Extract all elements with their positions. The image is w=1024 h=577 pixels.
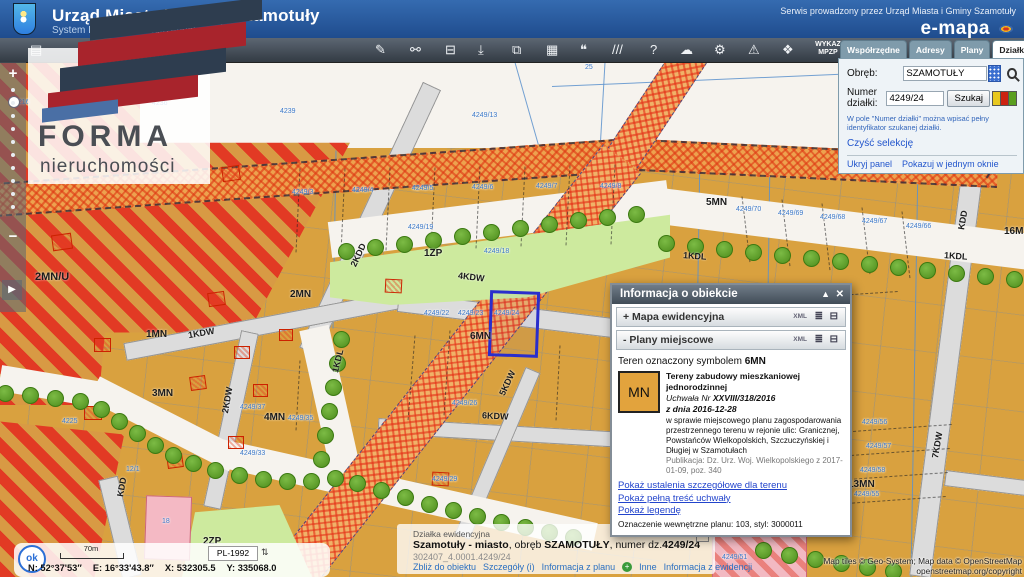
parcel-number-label: 4239 bbox=[280, 108, 296, 115]
zoom-out-button[interactable]: − bbox=[0, 228, 26, 245]
publikacja-line: Publikacja: Dz. Urz. Woj. Wielkopolskieg… bbox=[666, 456, 844, 476]
tree-icon bbox=[397, 489, 414, 506]
map-attribution: Map tiles © Geo-System; Map data © OpenS… bbox=[823, 557, 1022, 576]
scale-label: 70m bbox=[60, 544, 122, 553]
parcel-number-label: 4249/7 bbox=[536, 183, 557, 190]
popup-titlebar[interactable]: Informacja o obiekcie ▲ ✕ bbox=[612, 285, 850, 304]
zoom-tick[interactable] bbox=[11, 114, 15, 118]
popup-link[interactable]: Pokaż pełną treść uchwały bbox=[618, 493, 844, 506]
coordinates-readout: N: 52°37'53″ E: 16°33'43.8″ X: 532305.5 … bbox=[28, 563, 276, 573]
more-options-icon[interactable]: + bbox=[622, 562, 632, 572]
plan-title: Tereny zabudowy mieszkaniowej jednorodzi… bbox=[666, 371, 844, 393]
szukaj-button[interactable]: Szukaj bbox=[947, 90, 990, 107]
tree-icon bbox=[570, 212, 587, 229]
zone-label: 3MN bbox=[152, 388, 173, 399]
print-icon[interactable]: ⊟ bbox=[445, 41, 456, 58]
tab-działki[interactable]: Działki bbox=[992, 40, 1024, 58]
measure-icon[interactable]: /// bbox=[612, 41, 623, 58]
clear-selection-link[interactable]: Czyść selekcję bbox=[847, 138, 1017, 149]
selection-color-flags[interactable] bbox=[993, 91, 1017, 106]
draw-icon[interactable]: ✎ bbox=[375, 41, 386, 58]
search-tabs: WspółrzędneAdresyPlanyDziałkiObiekty✕ bbox=[838, 40, 1024, 58]
coord-e: E: 16°33'43.8″ bbox=[93, 563, 154, 573]
zone-label: 2MN bbox=[290, 289, 311, 300]
building-outline bbox=[221, 165, 241, 182]
tree-icon bbox=[1006, 271, 1023, 288]
grid-icon[interactable]: ▦ bbox=[546, 41, 558, 58]
plan-description: w sprawie miejscowego planu zagospodarow… bbox=[666, 416, 844, 456]
zoom-tick[interactable] bbox=[11, 153, 15, 157]
zoom-tick[interactable] bbox=[11, 192, 15, 196]
building-outline bbox=[279, 329, 293, 341]
tree-icon bbox=[185, 455, 202, 472]
tree-icon bbox=[512, 220, 529, 237]
tree-icon bbox=[658, 235, 675, 252]
tree-icon bbox=[716, 241, 733, 258]
coord-x: X: 532305.5 bbox=[165, 563, 216, 573]
parcel-number-label: 4249/6 bbox=[472, 184, 493, 191]
parcel-number-label: 4249/26 bbox=[452, 400, 477, 407]
numer-input[interactable] bbox=[886, 91, 944, 106]
building-outline bbox=[228, 436, 244, 449]
zone-label: 1KDL bbox=[944, 250, 968, 262]
emapa-logo: e-mapa bbox=[920, 18, 990, 40]
zoom-tick[interactable] bbox=[11, 140, 15, 144]
tree-icon bbox=[628, 206, 645, 223]
parcel-number-label: 4249/4 bbox=[352, 187, 373, 194]
tree-icon bbox=[165, 447, 182, 464]
object-info-popup: Informacja o obiekcie ▲ ✕ + Mapa ewidenc… bbox=[610, 283, 852, 537]
zoom-slider[interactable]: + − bbox=[0, 62, 26, 312]
parcel-number-label: 12/1 bbox=[126, 466, 140, 473]
building-outline bbox=[234, 346, 250, 359]
parcel-number-label: 4249/33 bbox=[240, 450, 265, 457]
oznaczenie-line: Oznaczenie wewnętrzne planu: 103, styl: … bbox=[618, 519, 844, 529]
tree-icon bbox=[599, 209, 616, 226]
tree-icon bbox=[421, 496, 438, 513]
popup-close-icon[interactable]: ✕ bbox=[836, 285, 844, 304]
tree-icon bbox=[396, 236, 413, 253]
tree-icon bbox=[367, 239, 384, 256]
parcel-boundary-line bbox=[515, 62, 541, 150]
print-icon[interactable]: ⊟ bbox=[830, 331, 838, 349]
tree-icon bbox=[977, 268, 994, 285]
zone-label: 2MN/U bbox=[35, 271, 69, 283]
numer-label: Numer działki: bbox=[847, 87, 886, 109]
obreb-label: Obręb: bbox=[847, 68, 903, 79]
teren-prefix: Teren oznaczony symbolem bbox=[618, 356, 745, 367]
crs-arrows-icon[interactable]: ⇅ bbox=[261, 547, 269, 558]
zone-label: 6KDW bbox=[482, 410, 509, 421]
parcel-number-label: 4249/35 bbox=[288, 415, 313, 422]
parcel-number-label: 4249/23 bbox=[458, 310, 483, 317]
parcel-number-label: 4249/22 bbox=[424, 310, 449, 317]
tree-icon bbox=[425, 232, 442, 249]
hide-panel-link[interactable]: Ukryj panel bbox=[847, 159, 892, 169]
single-window-link[interactable]: Pokazuj w jednym oknie bbox=[902, 159, 999, 169]
parcel-number-label: 25 bbox=[585, 64, 593, 71]
tree-icon bbox=[755, 542, 772, 559]
zoom-tick[interactable] bbox=[11, 127, 15, 131]
building-outline bbox=[207, 291, 226, 307]
zone-label: 5MN bbox=[706, 197, 727, 208]
tab-adresy[interactable]: Adresy bbox=[909, 40, 952, 58]
tab-współrzędne[interactable]: Współrzędne bbox=[840, 40, 907, 58]
tree-icon bbox=[111, 413, 128, 430]
zone-label: 6MN bbox=[470, 331, 491, 342]
feature-mid2: , numer dz. bbox=[610, 539, 663, 551]
tree-icon bbox=[317, 427, 334, 444]
crs-select[interactable]: PL-1992 bbox=[208, 546, 258, 561]
parcel-number-label: 4249/58 bbox=[860, 467, 885, 474]
tree-icon bbox=[147, 437, 164, 454]
scale-bar bbox=[60, 553, 124, 559]
status-bar: ok 70m PL-1992 ⇅ N: 52°37'53″ E: 16°33'4… bbox=[14, 543, 330, 577]
parcel-number-label: 4249/56 bbox=[862, 419, 887, 426]
warning-icon[interactable]: ⚠ bbox=[748, 41, 760, 58]
parcel-number-label: 4249/66 bbox=[906, 223, 931, 230]
tree-icon bbox=[807, 551, 824, 568]
popup-sections: + Mapa ewidencyjnaXML≣⊟- Plany miejscowe… bbox=[612, 307, 850, 350]
feature-link[interactable]: Informacja z ewidencji bbox=[664, 562, 753, 572]
forma-title: FORMA bbox=[38, 120, 173, 154]
parcel-number-label: 4249/68 bbox=[820, 214, 845, 221]
tree-icon bbox=[445, 502, 462, 519]
z-dnia-line: z dnia 2016-12-28 bbox=[666, 404, 844, 415]
zone-label: 1KDL bbox=[683, 250, 707, 262]
parcel-number-label: 4249/37 bbox=[240, 404, 265, 411]
tree-icon bbox=[303, 473, 320, 490]
feature-identifier: 302407_4.0001.4249/24 bbox=[413, 552, 511, 562]
zone-label: 16MN bbox=[1004, 226, 1024, 237]
teren-symbol: 6MN bbox=[745, 356, 766, 367]
tree-icon bbox=[279, 473, 296, 490]
search-hint: W pole "Numer działki" można wpisać pełn… bbox=[847, 114, 1017, 132]
tree-icon bbox=[861, 256, 878, 273]
parcel-number-label: 4249/3 bbox=[292, 189, 313, 196]
emapa-ellipse-icon bbox=[994, 22, 1018, 36]
parcel-number-label: 4249/69 bbox=[778, 210, 803, 217]
service-note: Serwis prowadzony przez Urząd Miasta i G… bbox=[780, 6, 1016, 16]
xml-link[interactable]: XML bbox=[793, 331, 807, 349]
popup-section-plany-miejscowe[interactable]: - Plany miejscoweXML≣⊟ bbox=[616, 330, 846, 350]
tree-icon bbox=[948, 265, 965, 282]
search-icon[interactable] bbox=[1007, 68, 1017, 79]
link-icon[interactable]: ⚯ bbox=[410, 41, 421, 58]
building-outline bbox=[385, 279, 403, 294]
zone-label: 4MN bbox=[264, 412, 285, 423]
feature-kind: Działka ewidencyjna bbox=[413, 529, 490, 539]
tree-icon bbox=[325, 379, 342, 396]
comment-icon[interactable]: ❝ bbox=[580, 41, 587, 58]
zone-label: 1MN bbox=[146, 329, 167, 340]
feature-town: Szamotuły - miasto bbox=[413, 539, 509, 551]
parcel-number-label: 4249/51 bbox=[722, 554, 747, 561]
coord-y: Y: 335068.0 bbox=[227, 563, 277, 573]
zone-symbol-swatch: MN bbox=[618, 371, 660, 413]
zoom-in-button[interactable]: + bbox=[0, 65, 26, 82]
feature-name: Szamotuły - miasto, obręb SZAMOTUŁY, num… bbox=[413, 539, 700, 551]
tree-icon bbox=[313, 451, 330, 468]
tab-plany[interactable]: Plany bbox=[954, 40, 991, 58]
tree-icon bbox=[919, 262, 936, 279]
feature-link[interactable]: Szczegóły (i) bbox=[483, 562, 535, 572]
parcel-number-label: 4249/13 bbox=[472, 112, 497, 119]
parcel-number-label: 4249/67 bbox=[862, 218, 887, 225]
uchwala-number: XXVIII/318/2016 bbox=[713, 393, 776, 403]
list-icon[interactable]: ≣ bbox=[815, 331, 823, 349]
tree-icon bbox=[93, 401, 110, 418]
building-outline bbox=[94, 338, 111, 352]
coord-n: N: 52°37'53″ bbox=[28, 563, 82, 573]
tree-icon bbox=[207, 462, 224, 479]
pan-button[interactable]: ▶ bbox=[2, 280, 22, 300]
popup-links: Pokaż ustalenia szczegółowe dla terenuPo… bbox=[618, 480, 844, 518]
tree-icon bbox=[469, 508, 486, 525]
tree-icon bbox=[454, 228, 471, 245]
cloud-icon[interactable]: ☁ bbox=[680, 41, 693, 58]
search-panel: WspółrzędneAdresyPlanyDziałkiObiekty✕ Ob… bbox=[838, 40, 1024, 174]
list-icon[interactable]: ≣ bbox=[815, 308, 823, 326]
search-panel-body: Obręb: Numer działki: Szukaj W pole "Num… bbox=[838, 58, 1024, 174]
feature-mid1: , obręb bbox=[509, 539, 545, 551]
zone-label: 1ZP bbox=[424, 248, 442, 259]
tree-icon bbox=[781, 547, 798, 564]
parcel-number-label: 4249/5 bbox=[412, 185, 433, 192]
selected-parcel-outline[interactable] bbox=[488, 290, 540, 358]
feature-link[interactable]: Zbliż do obiektu bbox=[413, 562, 476, 572]
app-window: 2MN/U2MN1MN3MN4MN6MN5MN13MN16MN1ZP2ZP1KD… bbox=[0, 0, 1024, 577]
feature-link[interactable]: Inne bbox=[639, 562, 657, 572]
xml-link[interactable]: XML bbox=[793, 308, 807, 326]
feature-link[interactable]: Informacja z planu bbox=[542, 562, 616, 572]
building-outline bbox=[51, 233, 73, 252]
parcel-number-label: 4249/24 bbox=[494, 310, 519, 317]
parcel-number-label: 4249/57 bbox=[866, 443, 891, 450]
parcel-boundary-line bbox=[600, 62, 606, 150]
building-outline bbox=[189, 375, 207, 391]
zoom-tick[interactable] bbox=[11, 101, 15, 105]
popup-link[interactable]: Pokaż legendę bbox=[618, 505, 844, 518]
popup-section-mapa-ewidencyjna[interactable]: + Mapa ewidencyjnaXML≣⊟ bbox=[616, 307, 846, 327]
parcel-number-label: 4249/29 bbox=[432, 476, 457, 483]
uchwala-prefix: Uchwała Nr bbox=[666, 393, 713, 403]
help-icon[interactable]: ? bbox=[650, 41, 657, 58]
zoom-tick[interactable] bbox=[11, 88, 15, 92]
zoom-tick[interactable] bbox=[11, 179, 15, 183]
parcel-number-label: 4249/70 bbox=[736, 206, 761, 213]
parcel-number-label: 4249/19 bbox=[408, 224, 433, 231]
parcel-number-label: 4249/55 bbox=[854, 491, 879, 498]
popup-link[interactable]: Pokaż ustalenia szczegółowe dla terenu bbox=[618, 480, 844, 493]
tree-icon bbox=[483, 224, 500, 241]
tree-icon bbox=[255, 471, 272, 488]
zoom-tick[interactable] bbox=[11, 205, 15, 209]
feature-obreb: SZAMOTUŁY bbox=[544, 539, 609, 551]
tree-icon bbox=[349, 475, 366, 492]
share-icon[interactable]: ❖ bbox=[782, 41, 794, 58]
tree-icon bbox=[832, 253, 849, 270]
feature-parcel-number: 4249/24 bbox=[662, 539, 700, 551]
tree-icon bbox=[327, 470, 344, 487]
tree-icon bbox=[890, 259, 907, 276]
parcel-number-label: 4225 bbox=[62, 418, 78, 425]
tree-icon bbox=[333, 331, 350, 348]
popup-body: Teren oznaczony symbolem 6MN MN Tereny z… bbox=[612, 350, 850, 529]
tree-icon bbox=[231, 467, 248, 484]
tree-icon bbox=[72, 393, 89, 410]
zone-label: 13MN bbox=[848, 479, 875, 490]
tree-icon bbox=[541, 216, 558, 233]
obreb-input[interactable] bbox=[903, 66, 987, 81]
tree-icon bbox=[373, 482, 390, 499]
feature-links: Zbliż do obiektuSzczegóły (i)Informacja … bbox=[413, 562, 752, 572]
anchor-icon[interactable]: ⤓ bbox=[478, 41, 484, 58]
tree-icon bbox=[129, 425, 146, 442]
copy-icon[interactable]: ⧉ bbox=[512, 41, 521, 58]
tree-icon bbox=[745, 244, 762, 261]
print-icon[interactable]: ⊟ bbox=[830, 308, 838, 326]
tree-icon bbox=[22, 387, 39, 404]
parcel-number-label: 4249/18 bbox=[484, 248, 509, 255]
forma-subtitle: nieruchomości bbox=[40, 156, 176, 178]
tree-icon bbox=[803, 250, 820, 267]
tree-icon bbox=[774, 247, 791, 264]
uchwala-line: Uchwała Nr XXVIII/318/2016 bbox=[666, 393, 844, 404]
obreb-dropdown-button[interactable] bbox=[988, 65, 1001, 82]
tree-icon bbox=[321, 403, 338, 420]
popup-minimize-icon[interactable]: ▲ bbox=[821, 285, 830, 304]
zoom-tick[interactable] bbox=[11, 166, 15, 170]
tree-icon bbox=[47, 390, 64, 407]
city-crest-icon bbox=[13, 3, 36, 35]
building-outline bbox=[253, 384, 268, 397]
attribution-link[interactable]: openstreetmap.org/copyright bbox=[823, 567, 1022, 577]
teren-line: Teren oznaczony symbolem 6MN bbox=[618, 356, 844, 367]
parcel-number-label: 18 bbox=[162, 518, 170, 525]
parcel-number-label: 4249/8 bbox=[600, 183, 621, 190]
popup-title-text: Informacja o obiekcie bbox=[620, 288, 738, 300]
settings-icon[interactable]: ⚙ bbox=[714, 41, 726, 58]
